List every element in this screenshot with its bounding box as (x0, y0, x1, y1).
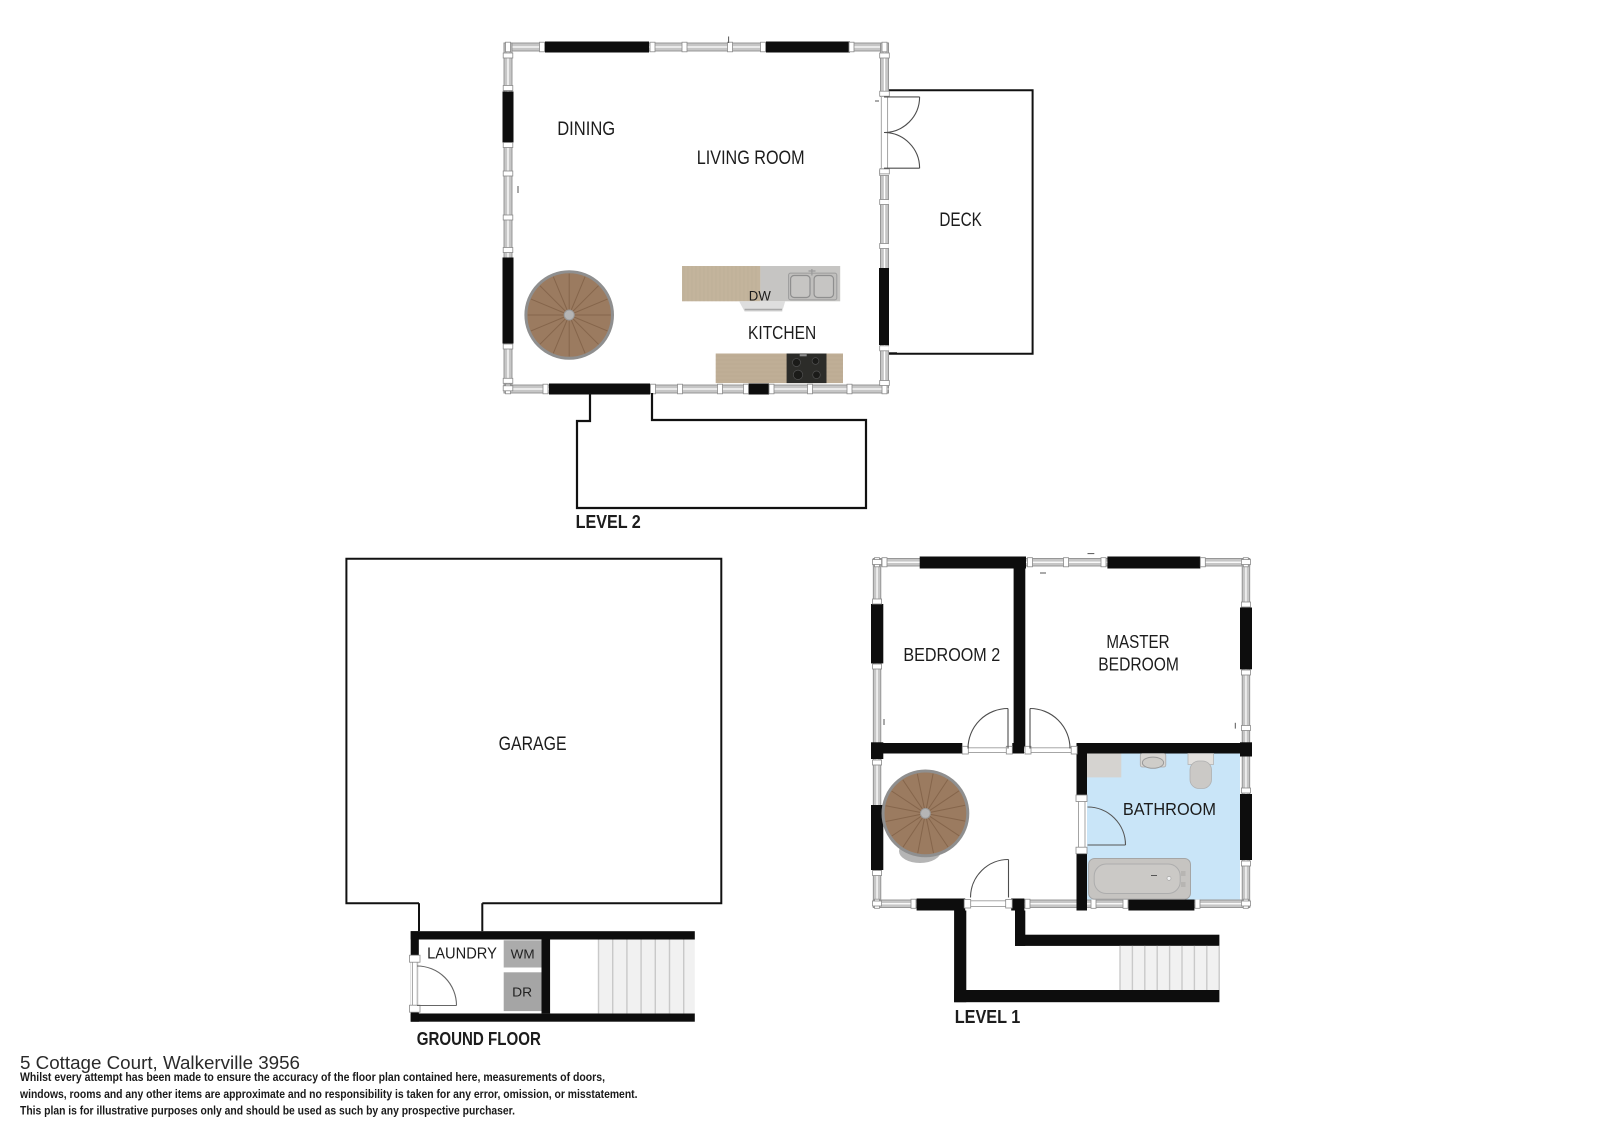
svg-text:DINING: DINING (557, 119, 615, 140)
svg-text:This plan is for illustrative: This plan is for illustrative purposes o… (20, 1104, 515, 1118)
svg-text:BEDROOM: BEDROOM (1098, 653, 1179, 674)
svg-text:DW: DW (749, 289, 771, 304)
svg-text:DR: DR (512, 986, 532, 1000)
svg-text:KITCHEN: KITCHEN (748, 322, 816, 343)
svg-text:LAUNDRY: LAUNDRY (427, 946, 497, 963)
svg-text:GROUND FLOOR: GROUND FLOOR (417, 1028, 541, 1049)
svg-text:MASTER: MASTER (1106, 631, 1169, 652)
svg-text:BATHROOM: BATHROOM (1123, 799, 1216, 819)
svg-text:windows, rooms and any other i: windows, rooms and any other items are a… (19, 1087, 637, 1101)
svg-text:Whilst every attempt has been: Whilst every attempt has been made to en… (20, 1070, 605, 1084)
svg-text:LIVING ROOM: LIVING ROOM (697, 148, 805, 169)
svg-text:BEDROOM 2: BEDROOM 2 (903, 644, 1000, 665)
svg-text:WM: WM (511, 947, 535, 961)
svg-text:DECK: DECK (939, 210, 982, 231)
svg-text:LEVEL 2: LEVEL 2 (576, 511, 641, 532)
svg-text:GARAGE: GARAGE (499, 734, 567, 755)
svg-text:LEVEL 1: LEVEL 1 (955, 1006, 1021, 1027)
